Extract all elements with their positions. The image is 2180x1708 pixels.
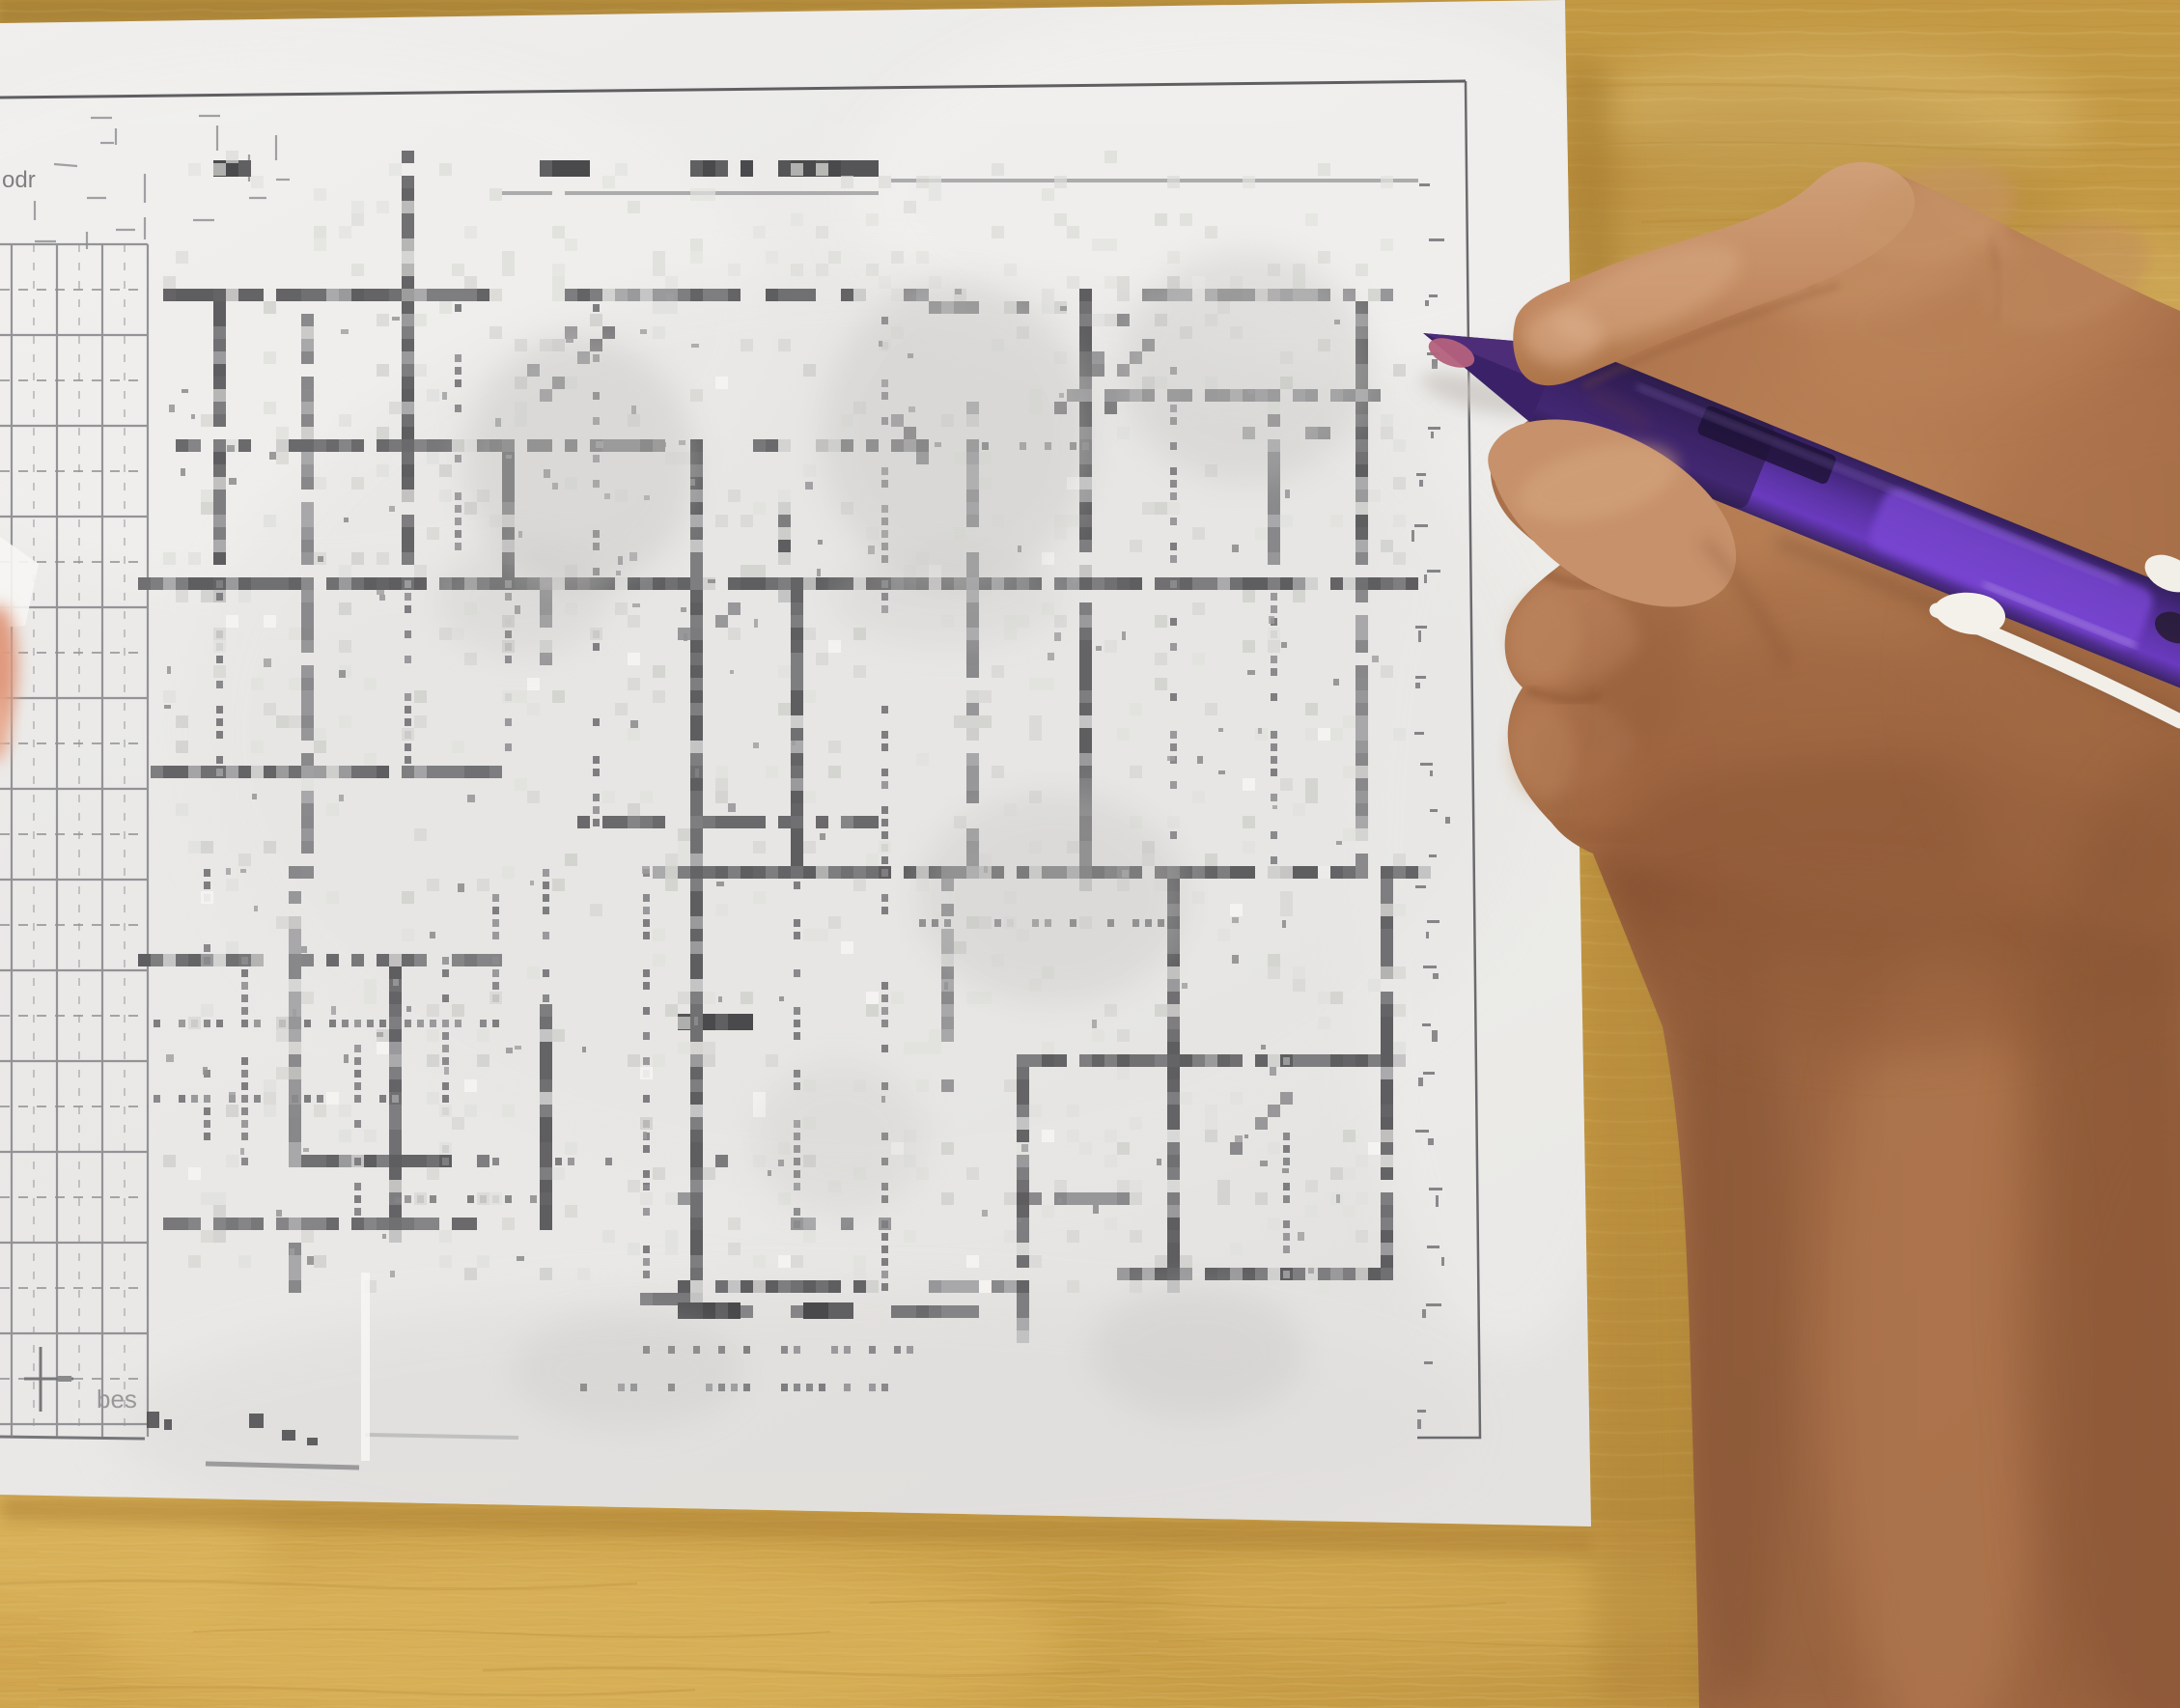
- svg-text:bes: bes: [97, 1385, 137, 1414]
- svg-text:odr: odr: [2, 167, 36, 193]
